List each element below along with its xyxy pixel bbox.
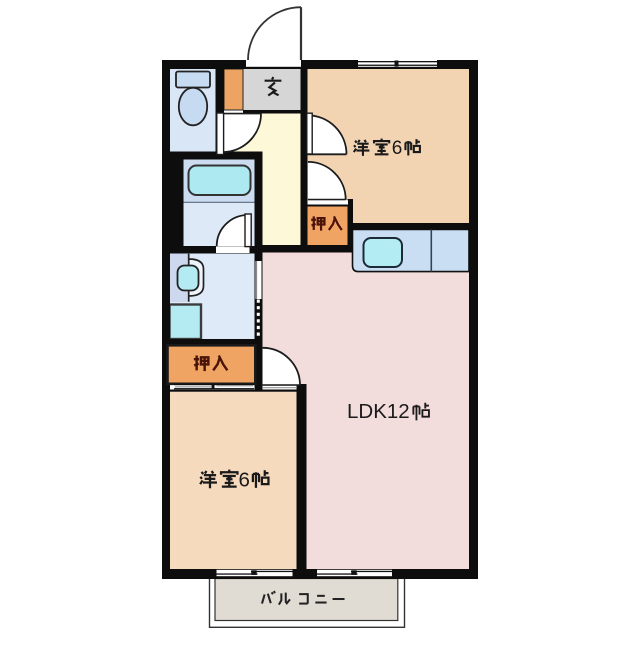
svg-text:6: 6 xyxy=(239,469,250,492)
svg-text:LDK12: LDK12 xyxy=(347,400,410,423)
svg-text:6: 6 xyxy=(392,138,403,159)
